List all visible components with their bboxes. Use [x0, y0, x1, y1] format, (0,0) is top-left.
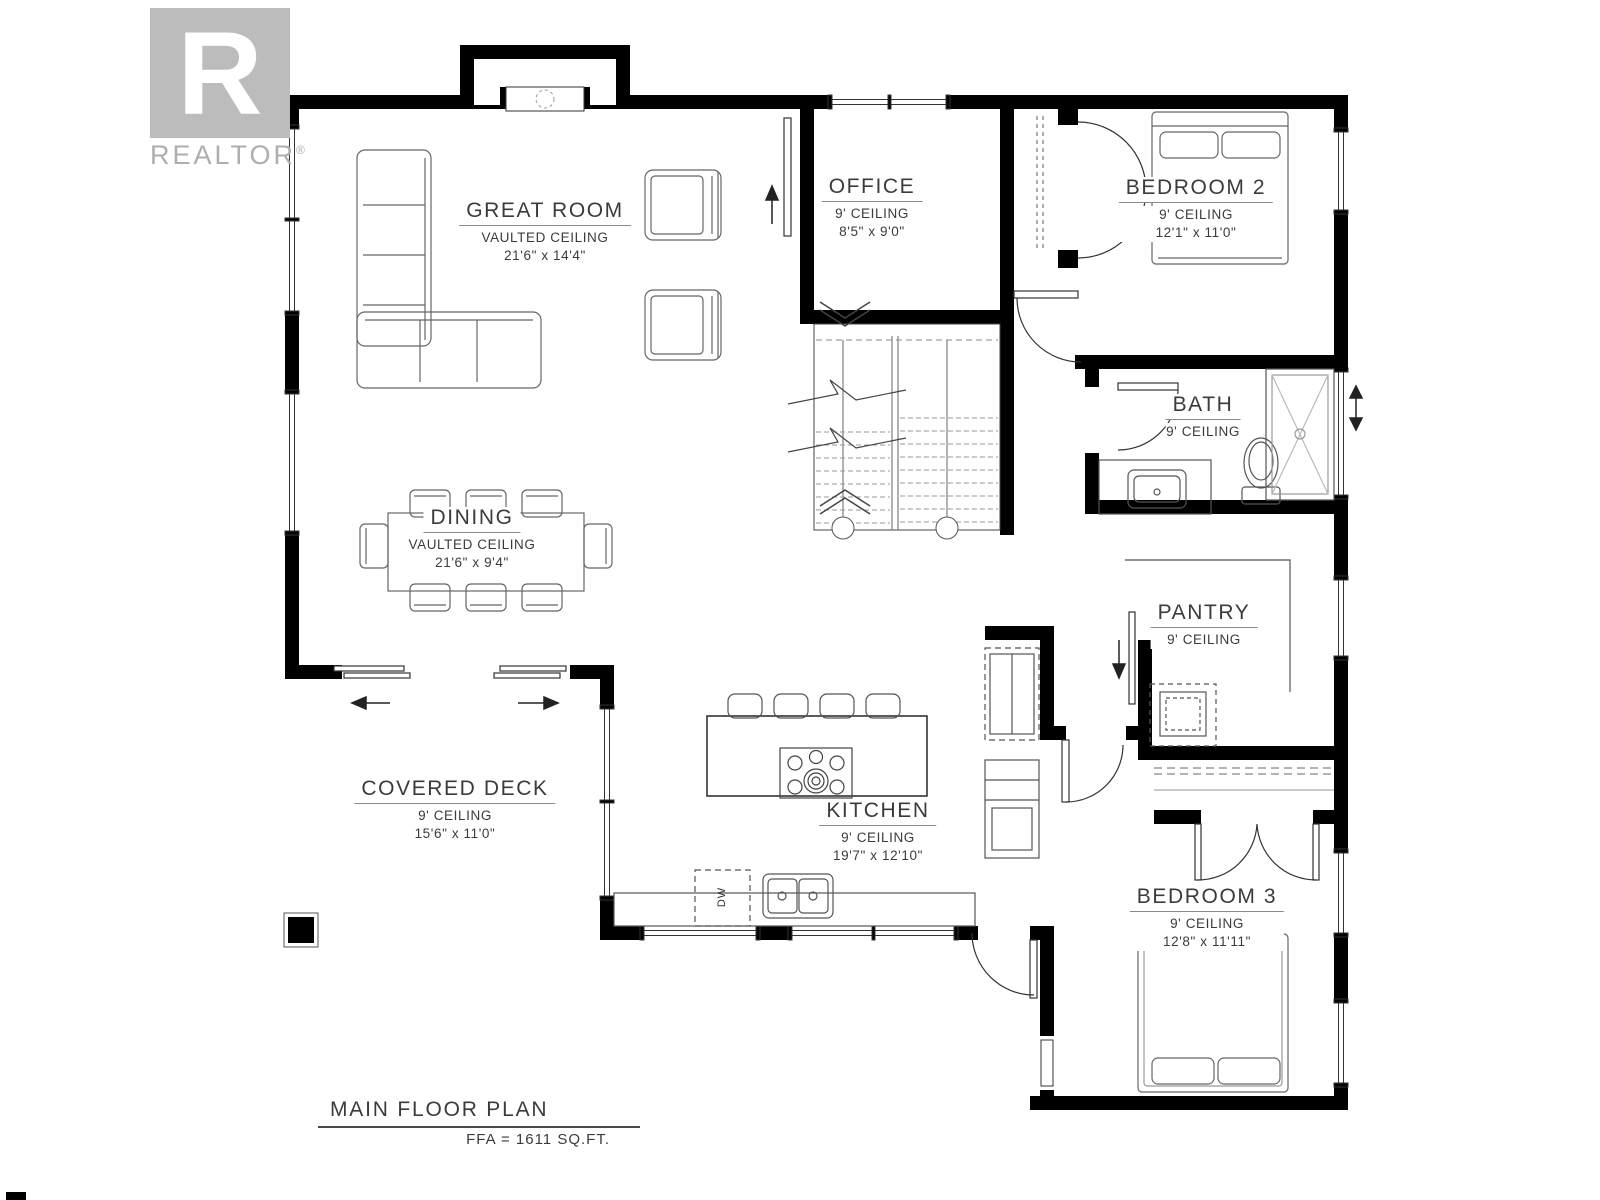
room-dimensions: 21'6" x 9'4" — [408, 554, 535, 572]
office-door-leaf — [784, 118, 791, 236]
stair-treads-right — [900, 418, 998, 522]
sectional-sofa — [357, 150, 541, 388]
room-title: DINING — [423, 507, 520, 533]
bedroom2-door-leaf — [1014, 291, 1078, 298]
window-right-4 — [1334, 849, 1348, 937]
bedroom3-bed — [1138, 934, 1288, 1092]
bedroom3-door-leaf — [1030, 940, 1037, 998]
bedroom3-closet-leaf-left — [1195, 824, 1201, 880]
bar-stools — [728, 694, 900, 718]
plan-area-note: FFA = 1611 SQ.FT. — [318, 1128, 640, 1148]
pantry-entry-arrow-icon — [1113, 640, 1125, 678]
shower — [1266, 369, 1334, 500]
window-left-2 — [285, 390, 299, 535]
room-dimensions: 19'7" x 12'10" — [819, 847, 936, 865]
stair-direction-chevrons — [820, 302, 870, 514]
room-title: GREAT ROOM — [459, 200, 631, 226]
bedroom3-closet-leaf-right — [1313, 824, 1319, 880]
room-ceiling: 9' CEILING — [1151, 631, 1258, 649]
window-kitchen-south-1 — [640, 926, 760, 940]
window-right-2 — [1334, 368, 1348, 499]
room-label-bath: BATH 9' CEILING — [1166, 394, 1241, 441]
window-slider-arrow-icon — [1350, 386, 1362, 430]
plan-title-block: MAIN FLOOR PLAN FFA = 1611 SQ.FT. — [318, 1098, 640, 1148]
room-title: KITCHEN — [819, 800, 936, 826]
deck-slider-right-arrow-icon — [518, 697, 558, 709]
pantry-appliance — [1150, 684, 1216, 746]
room-ceiling: 9' CEILING — [1119, 206, 1273, 224]
room-ceiling: 9' CEILING — [1130, 915, 1284, 933]
bath-door-leaf — [1118, 383, 1178, 390]
kitchen-island — [707, 716, 927, 796]
deck-slider-panels — [334, 666, 566, 678]
room-dimensions: 8'5" x 9'0" — [822, 223, 923, 241]
armchair-1 — [645, 170, 721, 240]
window-right-1 — [1334, 128, 1348, 214]
room-title: PANTRY — [1151, 602, 1258, 628]
room-dimensions: 21'6" x 14'4" — [459, 247, 631, 265]
hall-door-arc — [1066, 745, 1123, 802]
room-title: BATH — [1166, 394, 1241, 420]
refrigerator — [985, 648, 1039, 740]
bedroom2-closet-rod — [1037, 116, 1043, 252]
room-label-bedroom-2: BEDROOM 2 9' CEILING 12'1" x 11'0" — [1119, 177, 1273, 242]
bedroom3-closet-arcs — [1198, 824, 1316, 880]
room-label-great-room: GREAT ROOM VAULTED CEILING 21'6" x 14'4" — [459, 200, 631, 265]
room-title: COVERED DECK — [354, 778, 555, 804]
room-label-bedroom-3: BEDROOM 3 9' CEILING 12'8" x 11'11" — [1130, 886, 1284, 951]
window-bedroom3-west — [1041, 1040, 1053, 1086]
room-title: BEDROOM 2 — [1119, 177, 1273, 203]
window-kitchen-west — [600, 705, 614, 900]
realtor-wordmark: REALTOR® — [150, 142, 310, 169]
fireplace — [460, 45, 630, 111]
cooktop — [780, 748, 852, 798]
great-room-furniture — [357, 150, 721, 388]
kitchen-sink — [763, 874, 833, 918]
room-ceiling: 9' CEILING — [1166, 423, 1241, 441]
bedroom3-closet-rod — [1154, 768, 1334, 774]
dishwasher-label: DW — [716, 887, 728, 907]
hall-door-leaf — [1062, 740, 1069, 802]
armchair-2 — [645, 290, 721, 360]
window-office-top — [828, 95, 950, 109]
window-right-5 — [1334, 999, 1348, 1087]
corner-mark — [6, 1192, 26, 1200]
kitchen-counter — [614, 893, 975, 926]
room-title: OFFICE — [822, 176, 923, 202]
room-ceiling: 9' CEILING — [354, 807, 555, 825]
window-kitchen-south-2 — [788, 926, 958, 940]
room-dimensions: 12'8" x 11'11" — [1130, 933, 1284, 951]
plan-title: MAIN FLOOR PLAN — [318, 1098, 640, 1128]
room-label-office: OFFICE 9' CEILING 8'5" x 9'0" — [822, 176, 923, 241]
staircase — [788, 302, 1000, 539]
bedroom2-door-arc — [1017, 298, 1081, 362]
room-ceiling: 9' CEILING — [819, 829, 936, 847]
room-label-covered-deck: COVERED DECK 9' CEILING 15'6" x 11'0" — [354, 778, 555, 843]
room-dimensions: 12'1" x 11'0" — [1119, 224, 1273, 242]
kitchen-furniture — [614, 648, 1039, 926]
office-entry-arrow-icon — [766, 186, 778, 224]
floorplan-drawing: R — [0, 0, 1600, 1200]
deck-slider-left-arrow-icon — [352, 697, 390, 709]
registered-trademark-icon: ® — [296, 143, 305, 157]
room-label-pantry: PANTRY 9' CEILING — [1151, 602, 1258, 649]
realtor-brand: REALTOR® — [150, 8, 310, 169]
pantry-slider-leaf — [1129, 612, 1135, 704]
room-ceiling: VAULTED CEILING — [459, 229, 631, 247]
wall-ovens — [985, 760, 1039, 858]
room-label-kitchen: KITCHEN 9' CEILING 19'7" x 12'10" — [819, 800, 936, 865]
deck-post — [284, 913, 318, 947]
room-ceiling: VAULTED CEILING — [408, 536, 535, 554]
room-dimensions: 15'6" x 11'0" — [354, 825, 555, 843]
stair-break-lines — [788, 380, 906, 452]
bath-fixtures — [1099, 369, 1334, 514]
room-label-dining: DINING VAULTED CEILING 21'6" x 9'4" — [408, 507, 535, 572]
window-right-3 — [1334, 576, 1348, 660]
room-title: BEDROOM 3 — [1130, 886, 1284, 912]
room-ceiling: 9' CEILING — [822, 205, 923, 223]
bedroom3-door-arc — [972, 933, 1034, 995]
